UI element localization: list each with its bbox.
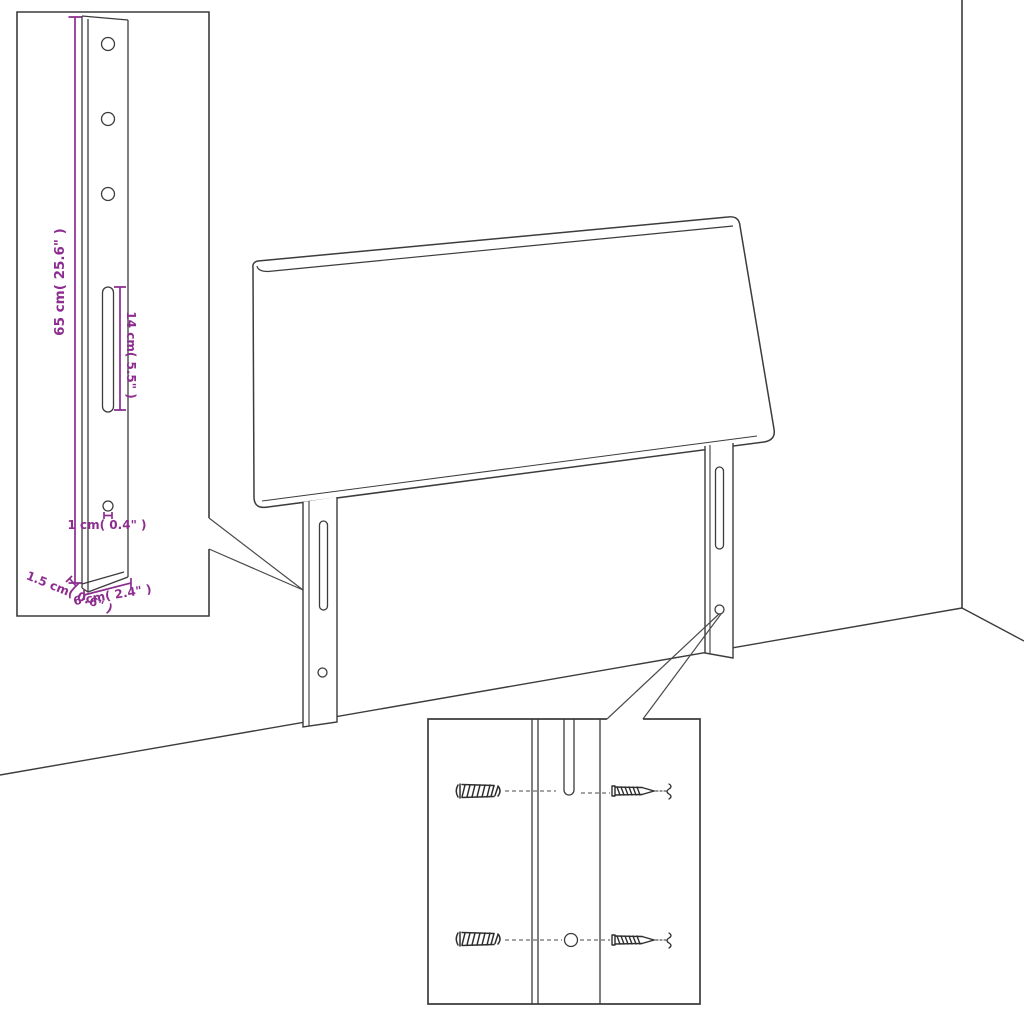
bracket-hole xyxy=(102,38,115,51)
screw-icon xyxy=(612,933,671,948)
bracket-drawing xyxy=(82,16,128,592)
leg-strip-drawing xyxy=(532,719,600,1004)
floor-line-right xyxy=(962,608,1024,641)
headboard-panel xyxy=(253,217,774,508)
bracket-hole xyxy=(102,113,115,126)
leg-strip-edges xyxy=(532,719,600,1004)
right-leg-face xyxy=(705,443,733,658)
dimension-annotations xyxy=(66,17,131,600)
slot-dimension-label: 14 cm( 5.5" ) xyxy=(124,311,138,398)
left-leg xyxy=(303,497,337,727)
right-leg xyxy=(705,443,733,658)
hardware-detail-inset xyxy=(428,614,721,1004)
hole-dimension-label: 1 cm( 0.4" ) xyxy=(68,518,147,532)
floor-line-left xyxy=(0,608,962,775)
height-dimension-label: 65 cm( 25.6" ) xyxy=(52,228,68,336)
bracket-top-edge xyxy=(82,16,128,20)
leg-strip-hole xyxy=(565,934,578,947)
headboard xyxy=(253,217,774,508)
wall-plug-icon xyxy=(456,784,500,798)
bracket-slot xyxy=(103,287,114,412)
diagram-canvas: 65 cm( 25.6" ) 14 cm( 5.5" ) 1 cm( 0.4" … xyxy=(0,0,1024,1024)
screw-icon xyxy=(612,784,671,799)
height-dimension-line xyxy=(69,17,82,583)
leg-strip-slot xyxy=(564,719,574,795)
bracket-small-hole xyxy=(103,501,113,511)
alignment-dashes xyxy=(505,791,610,940)
assembly-diagram: 65 cm( 25.6" ) 14 cm( 5.5" ) 1 cm( 0.4" … xyxy=(0,0,1024,1024)
callout-wedge-lines xyxy=(209,518,303,590)
wall-plug-icon xyxy=(456,932,500,946)
bracket-hole xyxy=(102,188,115,201)
